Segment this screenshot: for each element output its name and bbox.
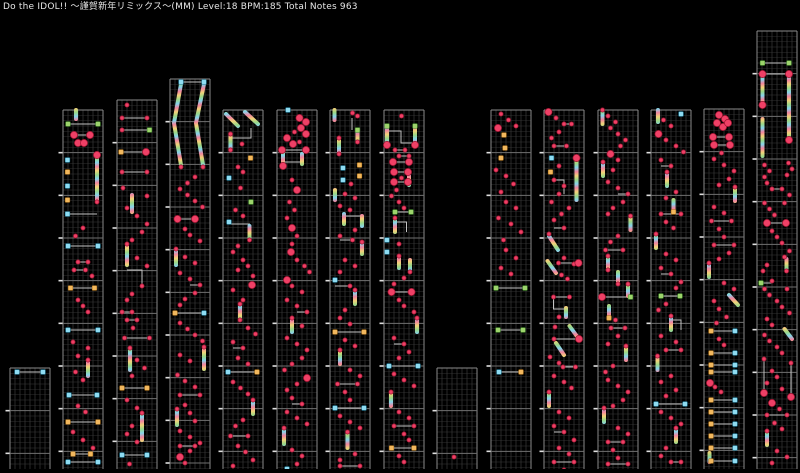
cyan-flick-note — [96, 460, 101, 465]
tap-note — [285, 388, 289, 392]
tap-note — [775, 345, 779, 349]
tap-note — [501, 238, 505, 242]
cyan-flick-note — [227, 220, 232, 225]
yellow-flick-note — [709, 370, 714, 375]
tap-note — [664, 196, 668, 200]
tap-note — [397, 200, 401, 204]
tap-note — [770, 279, 774, 283]
tap-note — [712, 299, 716, 303]
large-tap-note — [293, 186, 300, 193]
tap-note — [175, 407, 179, 411]
tap-note — [355, 114, 359, 118]
tap-note — [140, 230, 144, 234]
tap-note — [185, 193, 189, 197]
tap-note — [606, 180, 610, 184]
tap-note — [127, 462, 131, 466]
tap-note — [613, 318, 617, 322]
green-flick-note — [678, 294, 683, 299]
tap-note — [130, 292, 134, 296]
cyan-flick-note — [145, 453, 150, 458]
tap-note — [125, 398, 129, 402]
tap-note — [198, 283, 202, 287]
tap-note — [145, 116, 149, 120]
tap-note — [300, 454, 304, 458]
tap-note — [179, 165, 183, 169]
cyan-flick-note — [333, 278, 338, 283]
tap-note — [557, 361, 561, 365]
tap-note — [509, 272, 513, 276]
tap-note — [606, 114, 610, 118]
tap-note — [290, 284, 294, 288]
tap-note — [787, 193, 791, 197]
tap-note — [623, 326, 627, 330]
tap-note — [556, 261, 560, 265]
tap-note — [765, 429, 769, 433]
tap-note — [183, 227, 187, 231]
tap-note — [353, 452, 357, 456]
tap-note — [506, 118, 510, 122]
tap-note — [765, 181, 769, 185]
tap-note — [722, 211, 726, 215]
tap-note — [674, 426, 678, 430]
tap-note — [246, 362, 250, 366]
tap-note — [557, 164, 561, 168]
tap-note — [732, 287, 736, 291]
tap-note — [717, 337, 721, 341]
tap-note — [573, 365, 577, 369]
green-flick-note — [249, 200, 254, 205]
tap-note — [295, 382, 299, 386]
tap-note — [392, 282, 396, 286]
tap-note — [569, 122, 573, 126]
tap-note — [621, 440, 625, 444]
tap-note — [228, 132, 232, 136]
tap-note — [81, 304, 85, 308]
tap-note — [73, 370, 77, 374]
cyan-flick-note — [65, 212, 70, 217]
chart-svg — [0, 0, 800, 469]
tap-note — [86, 346, 90, 350]
large-tap-note — [759, 101, 766, 108]
tap-note — [674, 340, 678, 344]
cyan-flick-note — [385, 250, 390, 255]
tap-note — [402, 276, 406, 280]
tap-note — [549, 136, 553, 140]
tap-note — [712, 243, 716, 247]
tap-note — [780, 187, 784, 191]
tap-note — [559, 273, 563, 277]
tap-note — [295, 258, 299, 262]
green-flick-note — [787, 61, 792, 66]
tap-note — [238, 186, 242, 190]
tap-note — [727, 251, 731, 255]
tap-note — [295, 462, 299, 466]
tap-note — [552, 424, 556, 428]
tap-note — [246, 326, 250, 330]
cyan-flick-note — [227, 176, 232, 181]
tap-note — [765, 381, 769, 385]
tap-note — [233, 208, 237, 212]
tap-note — [626, 390, 630, 394]
tap-note — [511, 182, 515, 186]
tap-note — [236, 444, 240, 448]
large-tap-note — [390, 168, 397, 175]
tap-note — [547, 232, 551, 236]
tap-note — [307, 270, 311, 274]
tap-note — [780, 351, 784, 355]
yellow-flick-note — [333, 330, 338, 335]
large-tap-note — [302, 130, 309, 137]
large-tap-note — [545, 108, 552, 115]
tap-note — [412, 384, 416, 388]
large-tap-note — [93, 151, 100, 158]
tap-note — [241, 170, 245, 174]
tap-note — [76, 260, 80, 264]
tap-note — [722, 163, 726, 167]
tap-note — [402, 206, 406, 210]
large-tap-note — [787, 393, 794, 400]
yellow-flick-note — [709, 410, 714, 415]
tap-note — [669, 460, 673, 464]
green-flick-note — [355, 128, 360, 133]
tap-note — [358, 374, 362, 378]
tap-note — [71, 430, 75, 434]
tap-note — [251, 398, 255, 402]
large-tap-note — [297, 124, 304, 131]
cyan-flick-note — [416, 364, 421, 369]
tap-note — [355, 140, 359, 144]
tap-note — [609, 326, 613, 330]
tap-note — [777, 407, 781, 411]
tap-note — [402, 378, 406, 382]
yellow-flick-note — [607, 316, 612, 321]
yellow-flick-note — [709, 422, 714, 427]
yellow-flick-note — [503, 146, 508, 151]
large-tap-note — [287, 248, 294, 255]
tap-note — [552, 144, 556, 148]
tap-note — [712, 157, 716, 161]
large-tap-note — [288, 224, 295, 231]
tap-note — [135, 318, 139, 322]
tap-note — [338, 204, 342, 208]
tap-note — [674, 388, 678, 392]
yellow-flick-note — [499, 156, 504, 161]
yellow-flick-note — [709, 363, 714, 368]
tap-note — [733, 185, 737, 189]
tap-note — [504, 200, 508, 204]
tap-note — [73, 234, 77, 238]
tap-note — [178, 353, 182, 357]
tap-note — [200, 339, 204, 343]
tap-note — [552, 374, 556, 378]
cyan-flick-note — [341, 166, 346, 171]
cyan-flick-note — [15, 370, 20, 375]
tap-note — [83, 410, 87, 414]
tap-note — [290, 242, 294, 246]
tap-note — [178, 303, 182, 307]
tap-note — [767, 293, 771, 297]
tap-note — [762, 175, 766, 179]
tap-note — [664, 220, 668, 224]
cyan-flick-note — [96, 328, 101, 333]
tap-note — [290, 362, 294, 366]
tap-note — [198, 393, 202, 397]
tap-note — [246, 264, 250, 268]
tap-note — [669, 124, 673, 128]
tap-note — [285, 410, 289, 414]
tap-note — [717, 257, 721, 261]
yellow-flick-note — [709, 434, 714, 439]
cyan-flick-note — [549, 156, 554, 161]
cyan-flick-note — [733, 370, 738, 375]
large-tap-note — [725, 133, 732, 140]
tap-note — [394, 188, 398, 192]
yellow-flick-note — [362, 330, 367, 335]
tap-note — [669, 416, 673, 420]
tap-note — [145, 170, 149, 174]
tap-note — [358, 464, 362, 468]
tap-note — [228, 434, 232, 438]
tap-note — [499, 266, 503, 270]
tap-note — [247, 238, 251, 242]
tap-note — [664, 252, 668, 256]
tap-note — [193, 385, 197, 389]
tap-note — [183, 403, 187, 407]
tap-note — [337, 136, 341, 140]
cyan-flick-note — [733, 410, 738, 415]
tap-note — [188, 435, 192, 439]
tap-note — [603, 370, 607, 374]
tap-note — [238, 302, 242, 306]
tap-note — [659, 380, 663, 384]
tap-note — [343, 192, 347, 196]
tap-note — [238, 318, 242, 322]
large-tap-note — [709, 133, 716, 140]
tap-note — [669, 272, 673, 276]
tap-note — [397, 410, 401, 414]
tap-note — [767, 339, 771, 343]
tap-note — [393, 216, 397, 220]
tap-note — [717, 183, 721, 187]
green-flick-note — [409, 210, 414, 215]
large-tap-note — [142, 148, 149, 155]
tap-note — [392, 424, 396, 428]
cyan-flick-note — [733, 329, 738, 334]
cyan-flick-note — [179, 80, 184, 85]
tap-note — [290, 316, 294, 320]
tap-note — [72, 268, 76, 272]
tap-note — [664, 348, 668, 352]
tap-note — [135, 214, 139, 218]
tap-note — [120, 310, 124, 314]
tap-note — [178, 429, 182, 433]
tap-note — [241, 258, 245, 262]
tap-note — [567, 452, 571, 456]
green-flick-note — [760, 61, 765, 66]
tap-note — [397, 254, 401, 258]
yellow-flick-note — [709, 329, 714, 334]
tap-note — [302, 264, 306, 268]
tap-note — [709, 219, 713, 223]
tap-note — [499, 190, 503, 194]
large-tap-note — [279, 162, 286, 169]
tap-note — [241, 298, 245, 302]
green-flick-note — [385, 124, 390, 129]
tap-note — [499, 112, 503, 116]
tap-note — [762, 287, 766, 291]
chart-title: Do the IDOL!! ～謹賀新年リミックス～(MM) Level:18 B… — [3, 2, 358, 13]
tap-note — [353, 264, 357, 268]
tap-note — [305, 422, 309, 426]
tap-note — [606, 462, 610, 466]
tap-note — [770, 229, 774, 233]
tap-note — [606, 212, 610, 216]
tap-note — [178, 271, 182, 275]
cyan-flick-note — [65, 158, 70, 163]
tap-note — [775, 235, 779, 239]
tap-note — [713, 385, 717, 389]
tap-note — [669, 164, 673, 168]
tap-note — [338, 270, 342, 274]
large-tap-note — [763, 219, 770, 226]
tap-note — [188, 449, 192, 453]
tap-note — [655, 354, 659, 358]
tap-note — [198, 239, 202, 243]
tap-note — [348, 322, 352, 326]
cyan-flick-note — [733, 398, 738, 403]
cyan-flick-note — [341, 178, 346, 183]
yellow-flick-note — [709, 446, 714, 451]
tap-note — [674, 258, 678, 262]
tap-note — [732, 169, 736, 173]
yellow-flick-note — [548, 170, 553, 175]
large-tap-note — [383, 141, 390, 148]
tap-note — [626, 462, 630, 466]
tap-note — [719, 390, 723, 394]
yellow-flick-note — [173, 311, 178, 316]
tap-note — [188, 411, 192, 415]
tap-note — [707, 261, 711, 265]
tap-note — [338, 348, 342, 352]
tap-note — [360, 240, 364, 244]
tap-note — [231, 464, 235, 468]
large-tap-note — [80, 139, 87, 146]
tap-note — [122, 336, 126, 340]
tap-note — [765, 317, 769, 321]
tap-note — [561, 365, 565, 369]
tap-note — [606, 268, 610, 272]
tap-note — [562, 122, 566, 126]
yellow-flick-note — [96, 420, 101, 425]
tap-note — [654, 232, 658, 236]
tap-note — [729, 219, 733, 223]
cyan-flick-note — [120, 453, 125, 458]
tap-note — [188, 233, 192, 237]
tap-note — [246, 392, 250, 396]
tap-note — [285, 336, 289, 340]
tap-note — [300, 324, 304, 328]
large-tap-note — [390, 178, 397, 185]
yellow-flick-note — [709, 459, 714, 464]
tap-note — [611, 364, 615, 368]
tap-note — [557, 410, 561, 414]
tap-note — [125, 298, 129, 302]
tap-note — [389, 390, 393, 394]
tap-note — [285, 298, 289, 302]
tap-note — [135, 256, 139, 260]
tap-note — [130, 310, 134, 314]
tap-note — [297, 140, 301, 144]
tap-note — [140, 284, 144, 288]
tap-note — [392, 336, 396, 340]
cyan-flick-note — [733, 446, 738, 451]
large-tap-note — [785, 70, 792, 77]
tap-note — [86, 260, 90, 264]
tap-note — [120, 116, 124, 120]
tap-note — [724, 315, 728, 319]
tap-note — [552, 178, 556, 182]
tap-note — [185, 181, 189, 185]
tap-note — [623, 138, 627, 142]
tap-note — [514, 124, 518, 128]
tap-note — [782, 255, 786, 259]
tap-note — [200, 205, 204, 209]
large-tap-note — [411, 141, 418, 148]
tap-note — [679, 460, 683, 464]
large-tap-note — [607, 150, 614, 157]
tap-note — [140, 411, 144, 415]
tap-note — [228, 148, 232, 152]
tap-note — [679, 348, 683, 352]
tap-note — [547, 390, 551, 394]
tap-note — [567, 295, 571, 299]
tap-note — [402, 432, 406, 436]
green-flick-note — [147, 128, 152, 133]
tap-note — [178, 187, 182, 191]
tap-note — [621, 200, 625, 204]
tap-note — [772, 213, 776, 217]
tap-note — [350, 111, 354, 115]
tap-note — [621, 398, 625, 402]
tap-note — [183, 255, 187, 259]
tap-note — [552, 218, 556, 222]
tap-note — [243, 450, 247, 454]
large-tap-note — [768, 399, 775, 406]
tap-note — [81, 378, 85, 382]
tap-note — [611, 448, 615, 452]
tap-note — [661, 118, 665, 122]
tap-note — [659, 410, 663, 414]
tap-note — [285, 216, 289, 220]
tap-note — [664, 446, 668, 450]
tap-note — [236, 268, 240, 272]
tap-note — [557, 130, 561, 134]
tap-note — [669, 314, 673, 318]
tap-note — [553, 325, 557, 329]
large-tap-note — [302, 118, 309, 125]
tap-note — [130, 424, 134, 428]
tap-note — [71, 340, 75, 344]
tap-note — [770, 187, 774, 191]
tap-note — [407, 416, 411, 420]
tap-note — [767, 207, 771, 211]
tap-note — [120, 128, 124, 132]
large-tap-note — [724, 119, 731, 126]
tap-note — [659, 334, 663, 338]
tap-note — [787, 249, 791, 253]
tap-note — [679, 212, 683, 216]
tap-note — [407, 438, 411, 442]
